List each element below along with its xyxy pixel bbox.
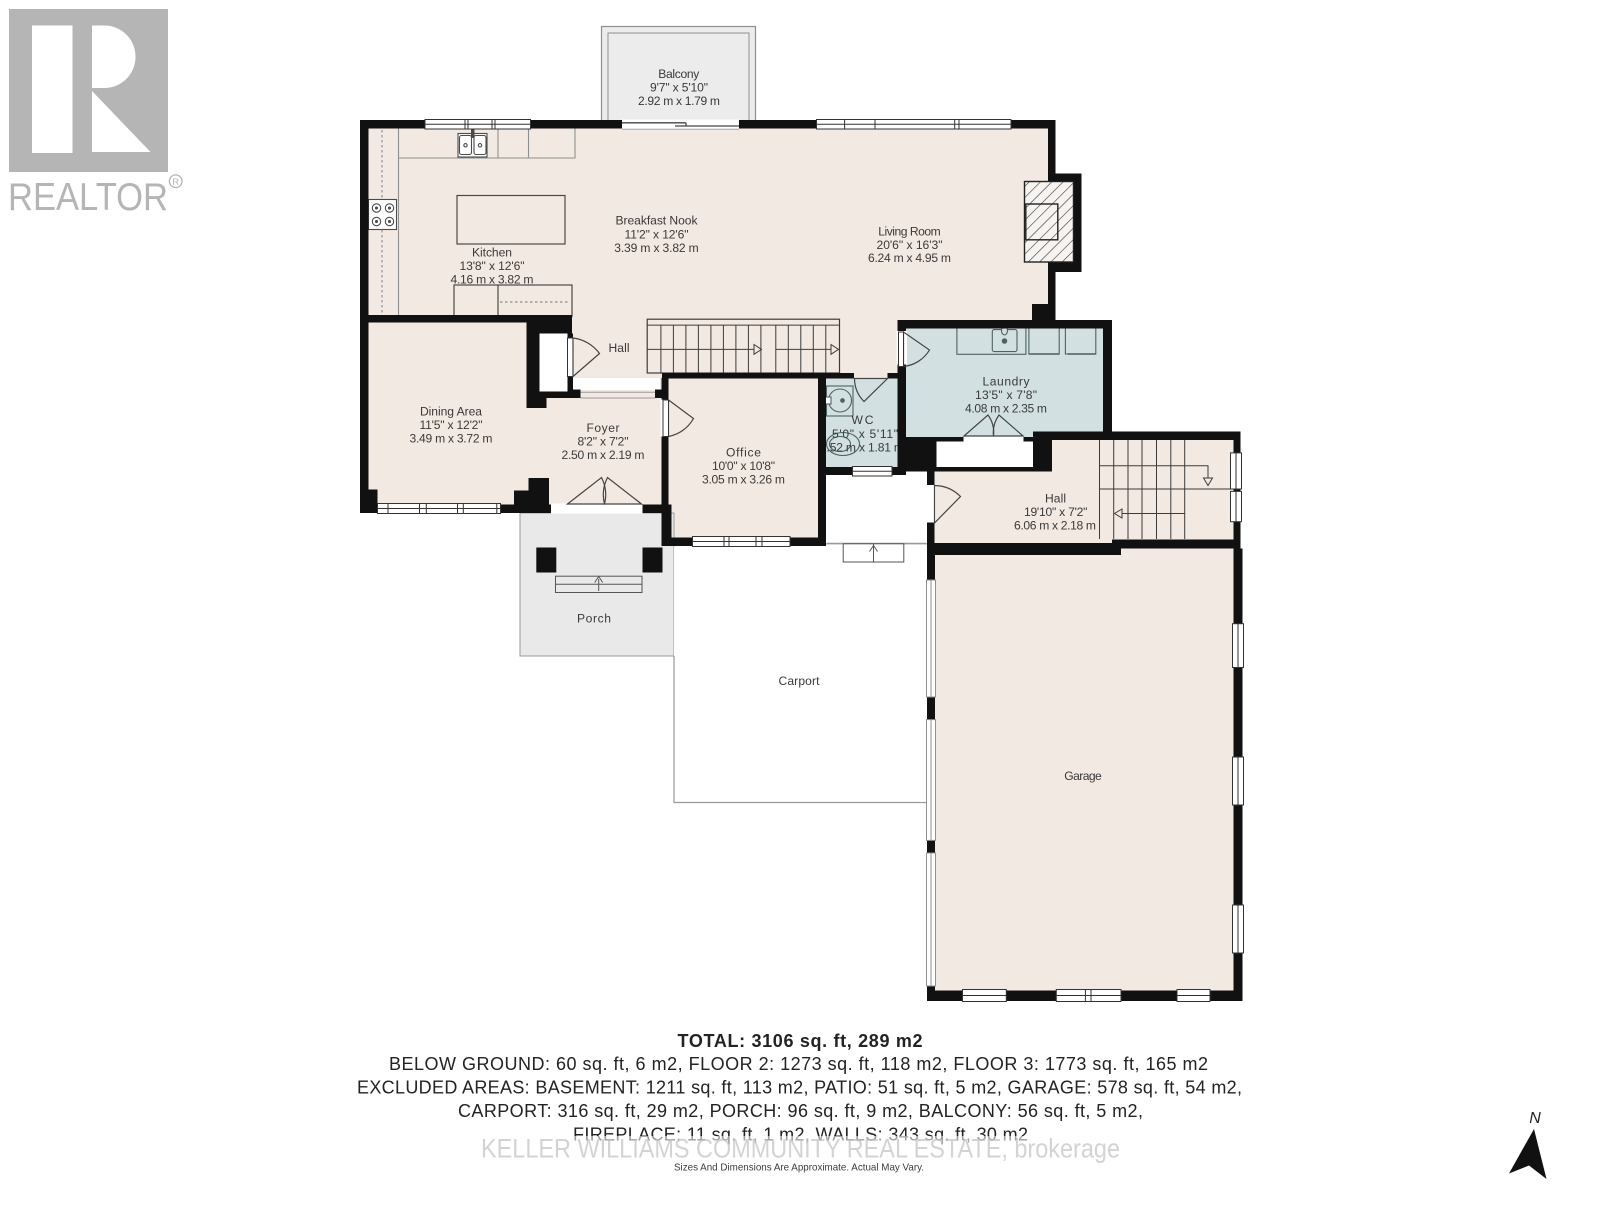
svg-text:KELLER WILLIAMS COMMUNITY REAL: KELLER WILLIAMS COMMUNITY REAL ESTATE, b… (481, 1134, 1120, 1164)
svg-text:Office: Office (726, 446, 761, 460)
svg-text:Balcony: Balcony (658, 67, 700, 81)
svg-text:Carport: Carport (779, 674, 821, 688)
svg-text:Sizes And Dimensions Are Appro: Sizes And Dimensions Are Approximate. Ac… (674, 1162, 924, 1174)
svg-text:Garage: Garage (1064, 769, 1102, 783)
svg-text:Hall: Hall (609, 341, 630, 355)
svg-text:3.05 m x 3.26 m: 3.05 m x 3.26 m (702, 473, 785, 487)
svg-text:EXCLUDED AREAS: BASEMENT: 1211: EXCLUDED AREAS: BASEMENT: 1211 sq. ft, 1… (357, 1078, 1242, 1098)
svg-text:8'2" x 7'2": 8'2" x 7'2" (578, 435, 629, 449)
svg-text:WC: WC (852, 413, 874, 427)
svg-text:9'7" x 5'10": 9'7" x 5'10" (650, 81, 708, 95)
svg-text:R: R (172, 177, 179, 188)
svg-text:20'6" x 16'3": 20'6" x 16'3" (877, 238, 943, 252)
svg-text:3.49 m x 3.72 m: 3.49 m x 3.72 m (410, 432, 493, 446)
svg-text:11'2" x 12'6": 11'2" x 12'6" (625, 227, 689, 241)
svg-text:Foyer: Foyer (587, 421, 620, 435)
svg-text:Dining Area: Dining Area (420, 405, 482, 419)
svg-text:1.52 m x 1.81 m: 1.52 m x 1.81 m (820, 441, 904, 455)
svg-text:5'0" x 5'11": 5'0" x 5'11" (832, 427, 898, 441)
svg-text:4.16 m x 3.82 m: 4.16 m x 3.82 m (451, 272, 534, 286)
svg-text:6.24 m x 4.95 m: 6.24 m x 4.95 m (868, 251, 951, 265)
svg-text:6.06 m x 2.18 m: 6.06 m x 2.18 m (1014, 519, 1096, 533)
svg-text:2.50 m x 2.19 m: 2.50 m x 2.19 m (562, 448, 645, 462)
svg-text:Porch: Porch (577, 612, 611, 626)
svg-text:3.39 m x 3.82 m: 3.39 m x 3.82 m (614, 241, 699, 255)
svg-text:2.92 m x 1.79 m: 2.92 m x 1.79 m (638, 94, 720, 108)
svg-text:13'5" x 7'8": 13'5" x 7'8" (975, 388, 1037, 402)
svg-text:CARPORT: 316 sq. ft, 29 m2, PO: CARPORT: 316 sq. ft, 29 m2, PORCH: 96 sq… (458, 1101, 1143, 1121)
svg-text:19'10" x 7'2": 19'10" x 7'2" (1024, 505, 1088, 519)
svg-text:BELOW GROUND: 60 sq. ft, 6 m2,: BELOW GROUND: 60 sq. ft, 6 m2, FLOOR 2: … (389, 1054, 1208, 1074)
svg-text:REALTOR: REALTOR (8, 176, 168, 219)
svg-text:11'5" x 12'2": 11'5" x 12'2" (420, 418, 483, 432)
svg-text:13'8" x 12'6": 13'8" x 12'6" (460, 259, 525, 273)
svg-text:10'0" x 10'8": 10'0" x 10'8" (712, 459, 775, 473)
svg-text:Kitchen: Kitchen (472, 245, 512, 259)
svg-text:TOTAL: 3106 sq. ft, 289 m2: TOTAL: 3106 sq. ft, 289 m2 (678, 1031, 923, 1051)
svg-text:N: N (1529, 1110, 1541, 1127)
svg-text:4.08 m x 2.35 m: 4.08 m x 2.35 m (965, 402, 1047, 416)
svg-text:Hall: Hall (1045, 492, 1066, 506)
svg-text:Laundry: Laundry (983, 375, 1031, 389)
svg-text:Living Room: Living Room (878, 225, 941, 239)
svg-text:Breakfast Nook: Breakfast Nook (616, 214, 699, 228)
